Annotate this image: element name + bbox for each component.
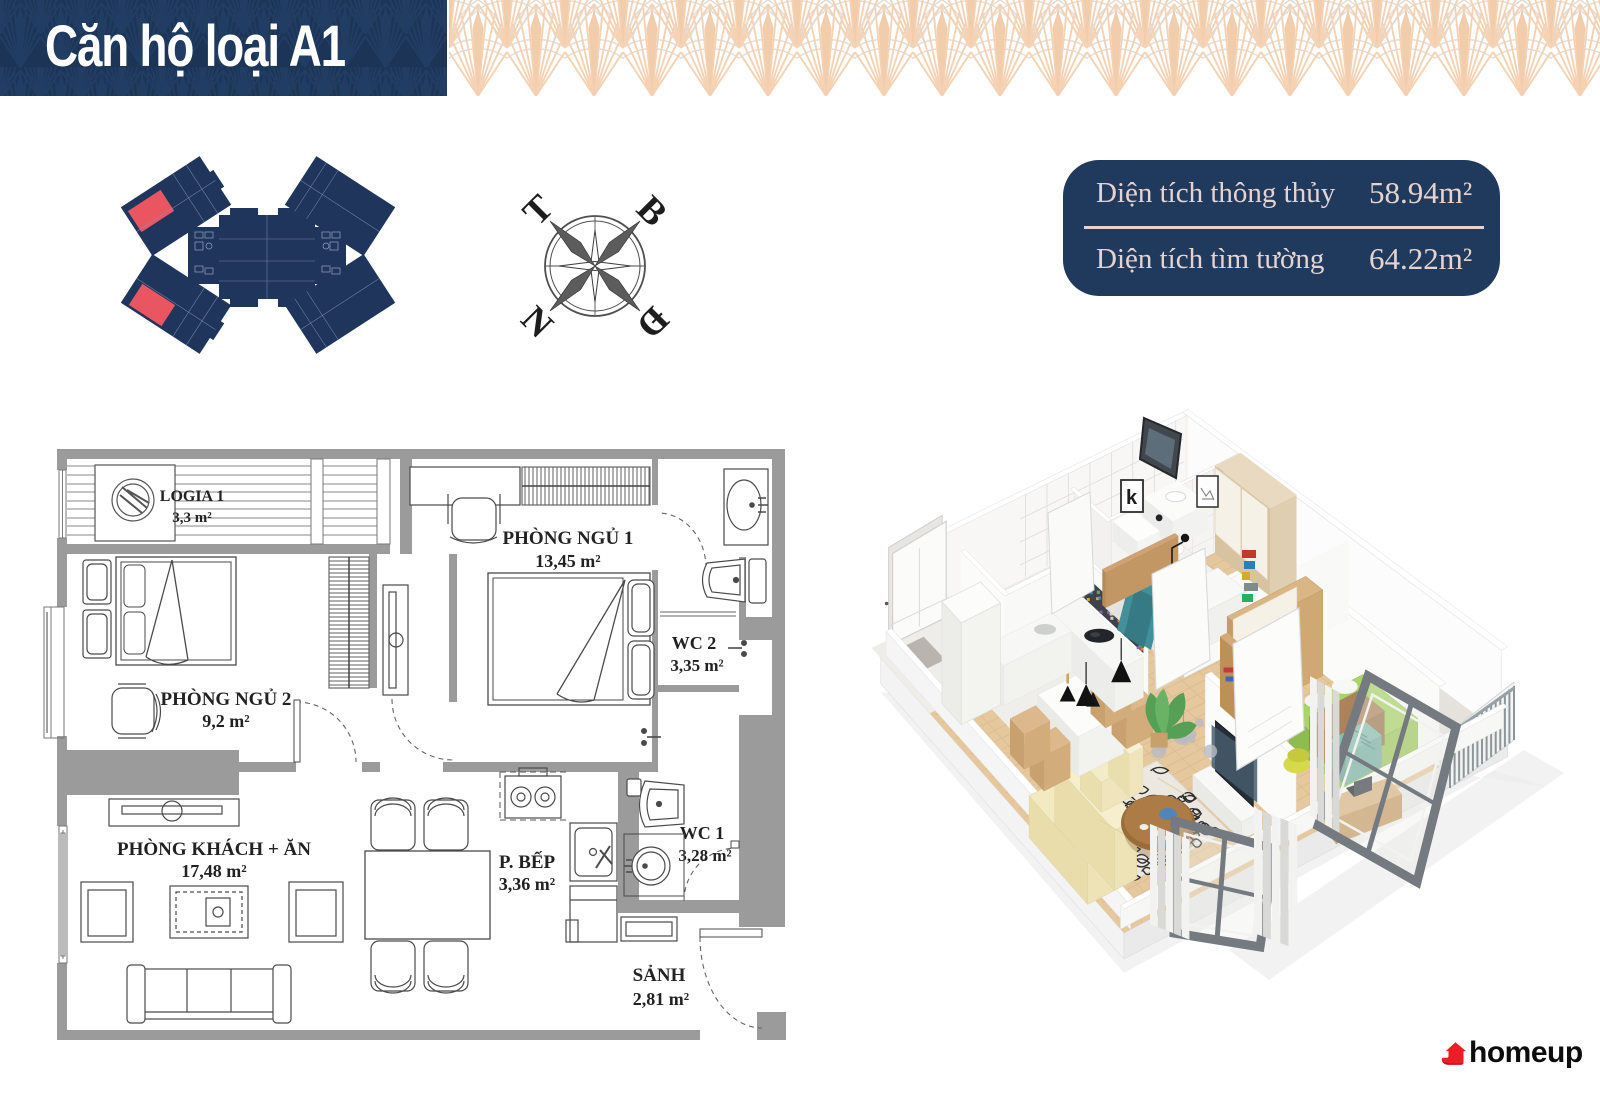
- svg-text:k: k: [1126, 487, 1138, 509]
